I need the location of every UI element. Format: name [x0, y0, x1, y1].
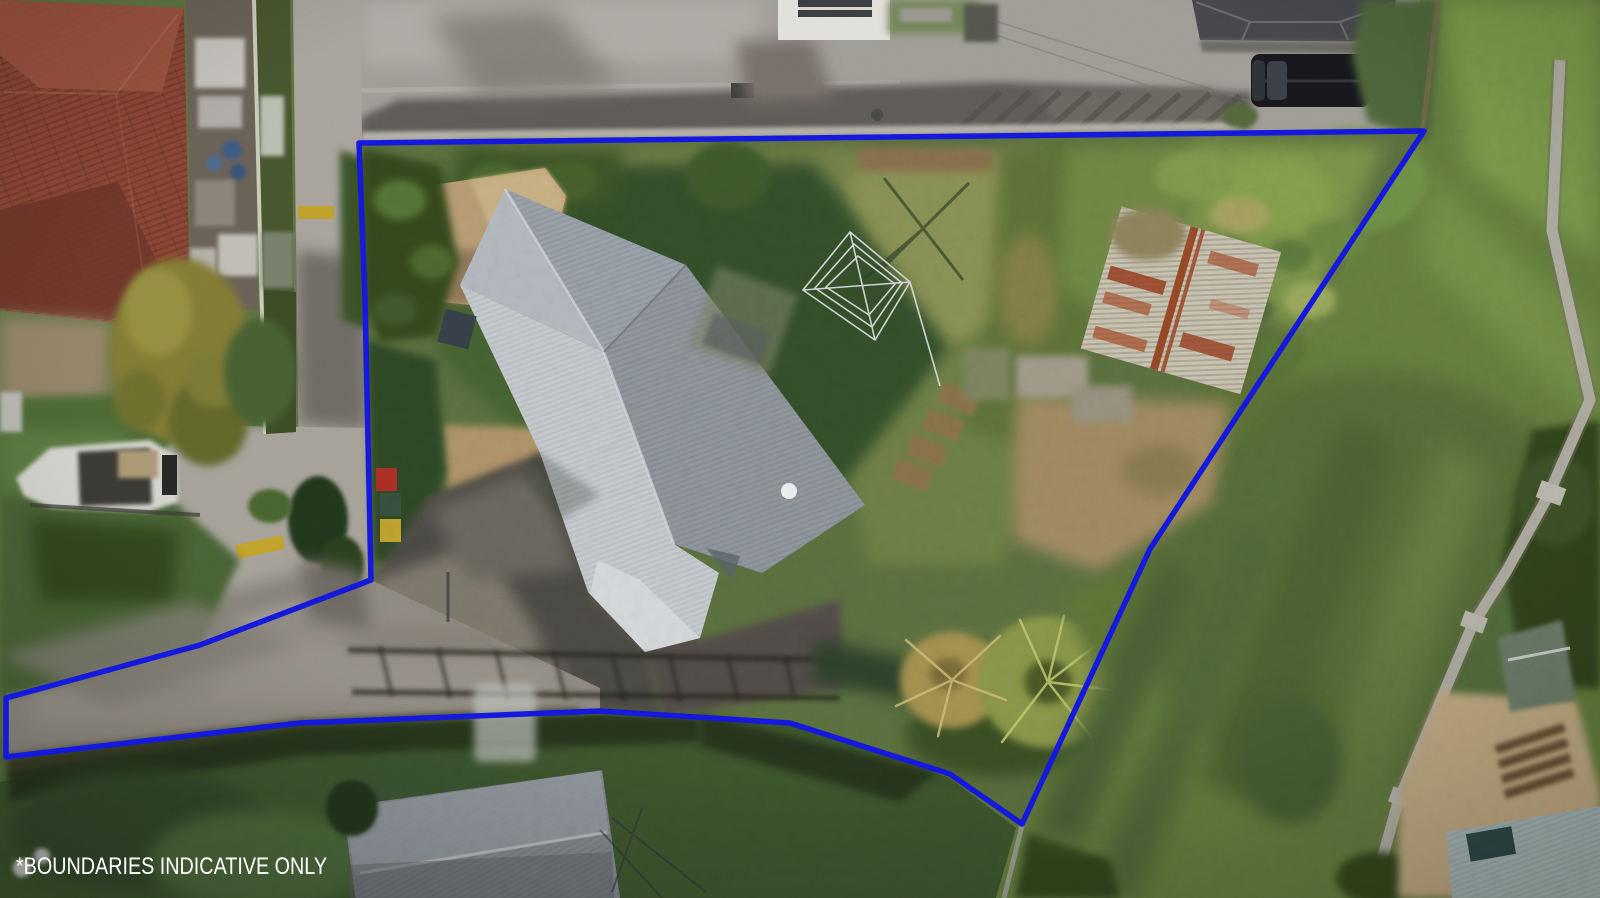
svg-text:*BOUNDARIES INDICATIVE ONLY: *BOUNDARIES INDICATIVE ONLY — [16, 853, 327, 880]
